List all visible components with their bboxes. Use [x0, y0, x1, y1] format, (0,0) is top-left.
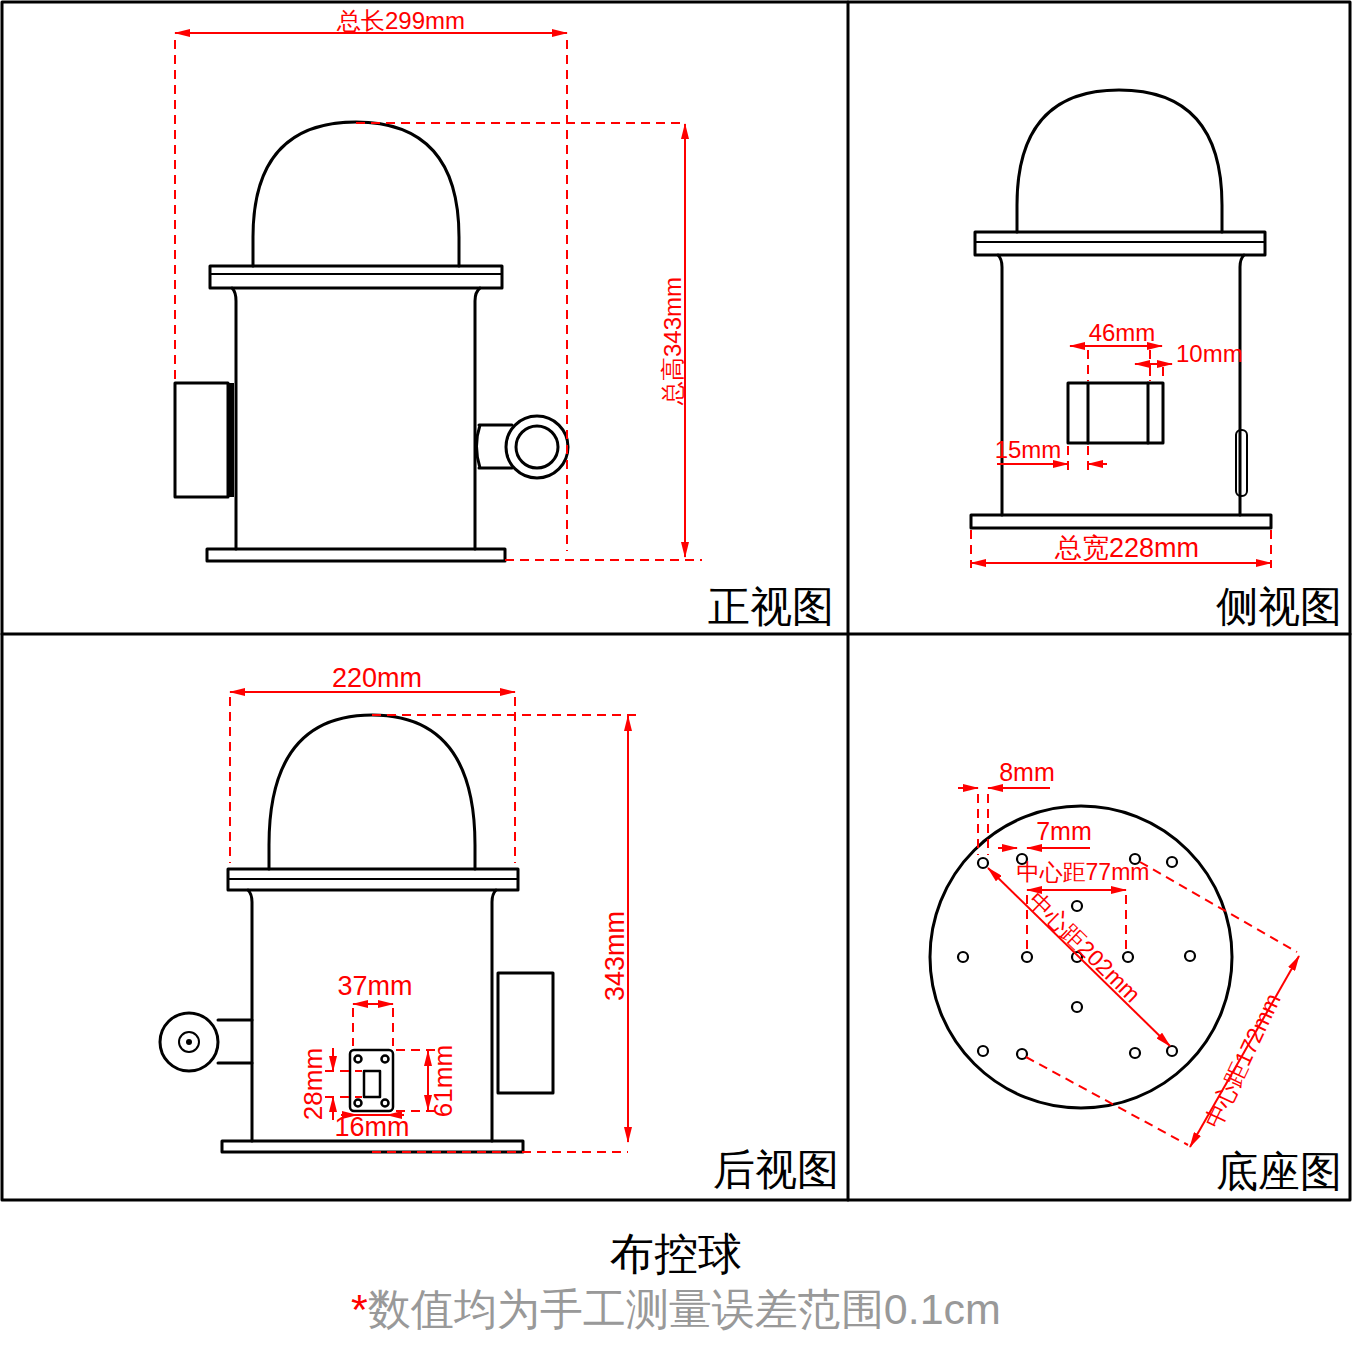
- front-body-outline: [232, 288, 480, 549]
- rear-plate-hole-bl: [355, 1100, 362, 1107]
- front-base-plate: [207, 549, 505, 561]
- base-hole: [1167, 1046, 1177, 1056]
- rear-plate-slot: [364, 1071, 380, 1097]
- base-hole: [1185, 951, 1195, 961]
- product-title: 布控球: [0, 1230, 1352, 1278]
- side-view: 46mm 10mm 15mm 总宽228mm 侧视图: [971, 90, 1342, 630]
- base-dim-172-ext-top: [1140, 862, 1297, 952]
- rear-dim-220-ext: [230, 697, 515, 863]
- base-hole: [978, 858, 988, 868]
- side-dim-46-ext: [1088, 350, 1150, 381]
- base-dim-77-text: 中心距77mm: [1017, 859, 1150, 885]
- base-hole: [978, 1046, 988, 1056]
- base-hole: [1072, 901, 1082, 911]
- base-hole: [1072, 1002, 1082, 1012]
- technical-drawing-page: 总长299mm 总高343mm 正视图 46mm 10mm 15mm 总宽228…: [0, 0, 1352, 1347]
- side-dim-10-text: 10mm: [1176, 340, 1243, 367]
- rear-knob-bracket: [218, 1020, 252, 1063]
- rear-view-label: 后视图: [713, 1146, 839, 1193]
- rear-dim-28-ext: [325, 1071, 362, 1097]
- base-hole: [1017, 1049, 1027, 1059]
- side-dome-outline: [1017, 90, 1222, 232]
- rear-dim-220-text: 220mm: [332, 663, 422, 693]
- front-ring-inner: [516, 426, 558, 468]
- base-hole: [1167, 857, 1177, 867]
- front-left-block: [175, 383, 228, 497]
- rear-dim-37-ext: [353, 1008, 393, 1046]
- base-dim-7-text: 7mm: [1036, 817, 1092, 845]
- base-hole: [1022, 952, 1032, 962]
- rear-plate-hole-br: [382, 1100, 389, 1107]
- front-flange: [210, 266, 502, 288]
- side-view-label: 侧视图: [1216, 583, 1342, 630]
- side-dim-width-text: 总宽228mm: [1054, 533, 1199, 563]
- caption-block: 布控球 *数值均为手工测量误差范围0.1cm: [0, 1202, 1352, 1334]
- front-dome-outline: [253, 122, 459, 266]
- base-hole: [1130, 1048, 1140, 1058]
- quadrant-borders: [2, 2, 1350, 1200]
- base-hole: [1123, 952, 1133, 962]
- rear-base-plate: [222, 1141, 523, 1152]
- rear-knob-center-dot: [186, 1039, 192, 1045]
- front-left-block-edge: [227, 383, 234, 497]
- side-dim-46-text: 46mm: [1089, 319, 1156, 346]
- rear-view: 220mm 343mm 37mm 28mm 61mm 16mm 后视图: [160, 663, 839, 1193]
- base-view-label: 底座图: [1216, 1148, 1342, 1195]
- base-view: 8mm 7mm 中心距77mm 中心距202mm 中心距172mm 底座图: [930, 758, 1342, 1195]
- rear-dim-343-text: 343mm: [600, 911, 630, 1001]
- note-text: 数值均为手工测量误差范围0.1cm: [368, 1285, 1001, 1333]
- side-flange: [975, 232, 1265, 255]
- base-dim-202-text: 中心距202mm: [1023, 887, 1145, 1008]
- measurement-note: *数值均为手工测量误差范围0.1cm: [0, 1286, 1352, 1333]
- base-hole: [958, 952, 968, 962]
- note-asterisk: *: [351, 1285, 368, 1333]
- rear-mount-plate: [350, 1050, 393, 1111]
- front-dim-height-text: 总高343mm: [659, 277, 686, 406]
- base-dim-8-text: 8mm: [999, 758, 1055, 786]
- rear-dim-61-text: 61mm: [428, 1045, 458, 1117]
- side-dim-10-ext: [1150, 367, 1163, 381]
- rear-plate-hole-tr: [382, 1056, 389, 1063]
- outer-border: [2, 2, 1350, 1200]
- front-dim-length-text: 总长299mm: [336, 7, 465, 34]
- base-dim-172-ext-bottom: [1026, 1057, 1188, 1145]
- side-dim-15-ext: [1068, 446, 1088, 470]
- front-view-label: 正视图: [708, 583, 834, 630]
- side-dim-15-text: 15mm: [995, 436, 1062, 463]
- base-dim-172-text: 中心距172mm: [1200, 989, 1286, 1132]
- side-base-plate: [971, 515, 1271, 528]
- drawing-canvas: 总长299mm 总高343mm 正视图 46mm 10mm 15mm 总宽228…: [0, 0, 1352, 1202]
- rear-dim-37-text: 37mm: [337, 971, 412, 1001]
- rear-right-block: [498, 973, 553, 1093]
- side-body-outline: [998, 255, 1244, 515]
- rear-body-outline: [248, 890, 496, 1141]
- rear-dome-outline: [269, 715, 475, 869]
- front-view: 总长299mm 总高343mm 正视图: [175, 7, 834, 630]
- rear-plate-hole-tl: [355, 1056, 362, 1063]
- rear-dim-28-text: 28mm: [298, 1048, 328, 1120]
- rear-dim-16-text: 16mm: [334, 1112, 409, 1142]
